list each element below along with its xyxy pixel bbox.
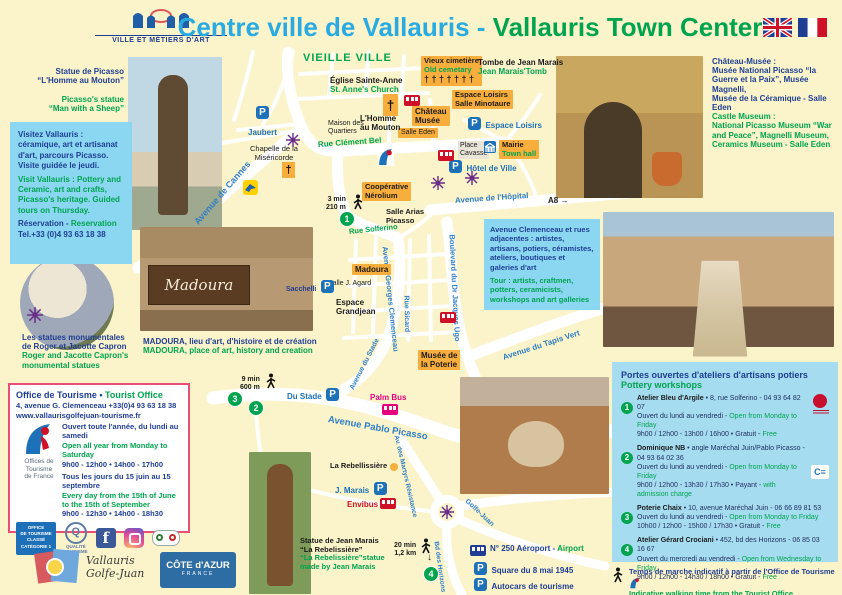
page-title-en: Vallauris Town Center <box>493 12 763 42</box>
chateau-arch <box>584 102 642 198</box>
visit-text-en: Visit Vallauris : Pottery and Ceramic, a… <box>18 175 121 215</box>
workshop-4-name: Atelier Gérard Crociani <box>637 537 714 544</box>
walking-icon <box>612 567 624 584</box>
jean-marais-statue-caption: Statue de Jean Marais “La Rebelissière” … <box>300 537 400 572</box>
vallauris-script-text: Vallauris Golfe-Juan <box>86 554 144 580</box>
post-office-icon <box>243 180 258 195</box>
reservation-phone: Tel.+33 (0)4 93 63 18 38 <box>18 230 124 240</box>
cemetery-en: Old cemetary <box>424 65 472 74</box>
madoura-sign-text: Madoura <box>165 276 234 294</box>
cote-azur-text: CÔTE d'AZUR <box>160 560 236 571</box>
page-title-fr: Centre ville de Vallauris - <box>178 12 493 42</box>
vieille-ville-label: VIEILLE VILLE <box>303 52 392 65</box>
walk-time-1: 3 min 210 m <box>326 196 346 212</box>
musee-poterie-label: Musée de la Poterie <box>418 350 460 370</box>
parking-icon: P <box>374 482 387 495</box>
st-annes-church-label: Église Sainte-Anne St. Anne's Church <box>330 76 402 94</box>
workshop-3-hours-fr: 10h00 / 12h00 - 15h00 / 17h30 • Gratuit … <box>637 523 766 530</box>
chateau-musee-photo <box>556 56 703 198</box>
airport-en: Airport <box>557 544 584 553</box>
salle-agard-label: Salle J. Agard <box>328 280 371 288</box>
parking-icon: P <box>256 106 269 119</box>
workshop-4-open-fr: Ouvert du mercredi au vendredi - <box>637 556 742 563</box>
j-marais-parking: J. Marais P <box>335 480 387 498</box>
chateau-caption-en: Castle Museum : National Picasso Museum … <box>712 112 832 149</box>
visit-text-fr: Visitez Vallauris : céramique, art et ar… <box>18 130 118 170</box>
j-marais-label: J. Marais <box>335 486 369 495</box>
palm-bus-label: Palm Bus <box>370 393 406 402</box>
starburst-icon <box>26 306 44 324</box>
walk-note-fr: Temps de marche indicatif à partir de l'… <box>629 567 835 576</box>
office-title-fr: Office de Tourisme • <box>16 390 105 400</box>
workshop-2-name: Dominique NB <box>637 445 685 452</box>
church-fr: Église Sainte-Anne <box>330 76 402 85</box>
la-rebellissiere-label: La Rebellissière <box>330 462 387 471</box>
du-stade-label: Du Stade <box>287 392 322 401</box>
tourist-office-mini-icon <box>629 577 641 589</box>
madoura-sign: Madoura <box>148 265 250 305</box>
route-marker-2: 2 <box>248 400 264 416</box>
chateau-caption-fr: Château-Musée : Musée National Picasso “… <box>712 57 827 112</box>
chateau-pot <box>652 152 682 186</box>
office-open2-fr: Tous les jours du 15 juin au 15 septembr… <box>62 472 182 491</box>
workshop-1-name: Atelier Bleu d'Argile <box>637 395 704 402</box>
street-path <box>693 261 747 357</box>
starburst-icon <box>464 170 480 186</box>
page-title: Centre ville de Vallauris - Vallauris To… <box>170 12 770 43</box>
roundabout-starburst-icon <box>439 504 455 520</box>
church-icon: † <box>383 94 398 116</box>
workshop-3-open-fr: Ouvert du lundi au vendredi - <box>637 514 729 521</box>
office-title-en: Tourist Office <box>105 390 163 400</box>
workshops-title-en: Pottery workshops <box>621 380 829 390</box>
salle-eden-label: Salle Eden <box>398 128 438 138</box>
office-open1-fr: Ouvert toute l'année, du lundi au samedi <box>62 422 182 441</box>
instagram-icon[interactable] <box>124 528 144 548</box>
cote-azur-logo: CÔTE d'AZUR FRANCE <box>160 552 236 588</box>
salle-arias-picasso-label: Salle Arias Picasso <box>386 208 424 225</box>
street-photo <box>603 212 834 347</box>
parking-icon: P <box>326 388 339 401</box>
rebelissiere-statue-photo <box>249 452 311 594</box>
workshop-1-hours-fr: 9h00 / 12h00 - 13h00 / 16h00 • Gratuit - <box>637 431 762 438</box>
rebellissiere-dot <box>390 463 398 471</box>
walk-time-2: 9 min 600 m <box>240 376 260 392</box>
cemetery-crosses: † † † † † † † <box>424 74 474 84</box>
walking-time-note: Temps de marche indicatif à partir de l'… <box>612 567 838 595</box>
sacchelli-label: Sacchelli <box>286 286 316 293</box>
chapel-icon: † <box>282 162 295 178</box>
walking-icon <box>352 194 364 211</box>
capron-caption-fr: Les statues monumentales de Roger et Jac… <box>22 333 126 351</box>
palm-bus-icon <box>382 404 398 415</box>
office-open2-hours: 9h00 - 12h30 • 14h00 - 18h30 <box>62 509 182 518</box>
starburst-icon <box>430 175 446 191</box>
starburst-icon <box>285 132 301 148</box>
bus-stop-icon <box>404 95 420 106</box>
otf-logo: Offices de Tourisme de France <box>16 422 62 519</box>
capron-caption: Les statues monumentales de Roger et Jac… <box>22 333 142 370</box>
espace-loisirs-parking-label: Espace Loisirs <box>485 121 541 130</box>
otf-logo-text: Offices de Tourisme de France <box>16 458 62 479</box>
workshop-item: 1 Atelier Bleu d'Argile • 8, rue Solferi… <box>621 394 829 439</box>
tripadvisor-icon[interactable] <box>152 530 180 546</box>
statue-silhouette <box>158 75 188 215</box>
workshop-3-detail: • 10, avenue Maréchal Juin - 06 66 89 81… <box>682 505 821 512</box>
jaubert-parking: P Jaubert <box>248 104 277 140</box>
office-address: 4, avenue G. Clemenceau +33(0)4 93 63 18… <box>16 401 182 410</box>
office-website-link[interactable]: www.vallaurisgolfejuan-tourisme.fr <box>16 411 182 420</box>
france-flag-icon[interactable] <box>798 18 827 37</box>
epv-logo <box>813 394 829 439</box>
sacchelli-parking: Sacchelli P <box>286 278 334 296</box>
route-marker-4: 4 <box>423 566 439 582</box>
a8-sign: A8 → <box>548 196 568 205</box>
pottery-photo <box>460 377 609 494</box>
clemenceau-box-en: Tour : artists, craftmen, potters, ceram… <box>490 276 589 304</box>
route-marker-1: 1 <box>339 211 355 227</box>
c-label-logo: C≡ <box>811 465 829 479</box>
mairie-en: Town hall <box>502 149 536 158</box>
cote-azur-sub: FRANCE <box>160 571 236 577</box>
square-8-mai-label: Square du 8 mai 1945 <box>491 566 573 575</box>
uk-flag-icon[interactable] <box>763 18 792 37</box>
workshop-3-name: Poterie Chaix <box>637 505 682 512</box>
clemenceau-box-fr: Avenue Clemenceau et rues adjacentes : a… <box>490 225 593 272</box>
tourist-office-map-icon <box>378 148 394 166</box>
envibus-icon <box>380 498 396 509</box>
parking-icon: P <box>449 160 462 173</box>
espace-loisirs-parking: P Espace Loisirs <box>468 115 542 133</box>
airport-fr: N° 250 Aéroport - <box>490 544 557 553</box>
tomb-fr: Tombe de Jean Marais <box>478 58 563 67</box>
chateau-musee-map-label: Château Musée <box>412 106 450 126</box>
visit-vallauris-box: Visitez Vallauris : céramique, art et ar… <box>10 122 132 264</box>
workshop-1-open-fr: Ouvert du lundi au vendredi - <box>637 413 729 420</box>
airport-bus-icon <box>470 545 486 556</box>
madoura-caption: MADOURA, lieu d'art, d'histoire et de cr… <box>143 337 353 355</box>
otf-logo-mark <box>24 422 54 456</box>
espace-grandjean-label: Espace Grandjean <box>336 298 376 316</box>
reservation-label-en: Reservation <box>71 219 117 228</box>
workshop-3-open-en: Open from Monday to Friday <box>729 514 818 521</box>
hotel-de-ville-parking: P Hôtel de Ville <box>449 158 517 176</box>
old-cemetery-label: Vieux cimetière Old cemetary † † † † † †… <box>421 56 482 86</box>
maison-quartiers-label: Maison des Quartiers <box>328 120 364 136</box>
workshop-1-hours-en: Free <box>762 431 776 438</box>
bus-stop-icon <box>438 150 454 161</box>
madoura-map-label: Madoura <box>352 264 391 275</box>
workshop-3-hours-en: Free <box>766 523 780 530</box>
picasso-statue-caption: Statue de Picasso “L'Homme au Mouton” Pi… <box>8 58 124 113</box>
du-stade-parking: Du Stade P <box>287 386 339 404</box>
workshop-2-hours-fr: 9h00 / 12h00 - 13h30 / 17h30 • Payant - <box>637 482 763 489</box>
walking-icon <box>420 538 432 555</box>
workshops-title-fr: Portes ouvertes d'ateliers d'artisans po… <box>621 370 829 380</box>
workshop-2-marker: 2 <box>621 452 633 464</box>
picasso-statue-caption-fr: Statue de Picasso “L'Homme au Mouton” <box>37 67 124 85</box>
street-rue-sicard: Rue Sicard <box>403 295 411 332</box>
office-open1-en: Open all year from Monday to Saturday <box>62 441 182 460</box>
office-open1-hours: 9h00 - 12h00 • 14h00 - 17h00 <box>62 460 182 469</box>
reservation-label-fr: Réservation - <box>18 219 71 228</box>
chateau-musee-caption: Château-Musée : Musée National Picasso “… <box>712 57 838 149</box>
homme-au-mouton-label: L'Homme au Mouton <box>360 114 400 132</box>
church-en: St. Anne's Church <box>330 85 399 94</box>
parking-icon: P <box>321 280 334 293</box>
jm-statue-fr: Statue de Jean Marais “La Rebelissière” <box>300 536 379 554</box>
jean-marais-tomb-label: Tombe de Jean Marais Jean Marais'Tomb <box>478 58 598 76</box>
rebelissiere-silhouette <box>267 464 293 586</box>
walking-icon <box>265 373 277 390</box>
workshop-3-marker: 3 <box>621 512 633 524</box>
route-marker-3: 3 <box>227 391 243 407</box>
workshop-item: 3 Poterie Chaix • 10, avenue Maréchal Ju… <box>621 504 829 531</box>
office-open2-en: Every day from the 15th of June to the 1… <box>62 491 182 510</box>
coach-parking-fr: Autocars de tourisme <box>491 582 573 591</box>
jaubert-parking-label: Jaubert <box>248 128 277 137</box>
parking-icon: P <box>474 562 487 575</box>
picasso-statue-caption-en: Picasso's statue “Man with a Sheep” <box>49 95 124 113</box>
jm-statue-en: “La Rebelissière”statue made by Jean Mar… <box>300 553 385 571</box>
avenue-clemenceau-info-box: Avenue Clemenceau et rues adjacentes : a… <box>484 219 600 310</box>
pottery-wheel <box>508 421 564 467</box>
espace-loisirs-minotaure-label: Espace Loisirs Salle Minotaure <box>452 90 513 109</box>
airport-bus-label: N° 250 Aéroport - Airport <box>490 544 584 553</box>
workshop-4-marker: 4 <box>621 544 633 556</box>
bus-stop-icon <box>440 312 456 323</box>
workshop-2-open-fr: Ouvert du lundi au vendredi - <box>637 464 729 471</box>
capron-caption-en: Roger and Jacotte Capron's monumental st… <box>22 351 128 369</box>
town-hall-label: Mairie Town hall <box>499 140 539 159</box>
pottery-workshops-box: Portes ouvertes d'ateliers d'artisans po… <box>612 362 838 562</box>
madoura-caption-fr: MADOURA, lieu d'art, d'histoire et de cr… <box>143 337 317 346</box>
envibus-label: Envibus <box>347 500 378 509</box>
tourist-office-box: Office de Tourisme • Tourist Office 4, a… <box>8 383 190 533</box>
workshop-item: 2 Dominique NB • angle Maréchal Juin/Pab… <box>621 444 829 499</box>
parking-icon: P <box>474 578 487 591</box>
parking-icon: P <box>468 117 481 130</box>
madoura-caption-en: MADOURA, place of art, history and creat… <box>143 346 313 355</box>
town-hall-icon <box>484 141 496 153</box>
vallauris-golfe-juan-logo: Vallauris Golfe-Juan <box>36 548 144 586</box>
tomb-en: Jean Marais'Tomb <box>478 67 547 76</box>
cooperative-nerolium-label: Coopérative Nérolium <box>362 182 411 201</box>
workshop-1-marker: 1 <box>621 402 633 414</box>
facebook-icon[interactable]: f <box>96 528 116 548</box>
vallauris-town-center-map: VILLE ET MÉTIERS D'ART Centre ville de V… <box>0 0 842 595</box>
coach-parking: P Autocars de tourisme Coach parking <box>474 576 574 595</box>
walk-note-en: Indicative walking time from the Tourist… <box>629 589 793 595</box>
